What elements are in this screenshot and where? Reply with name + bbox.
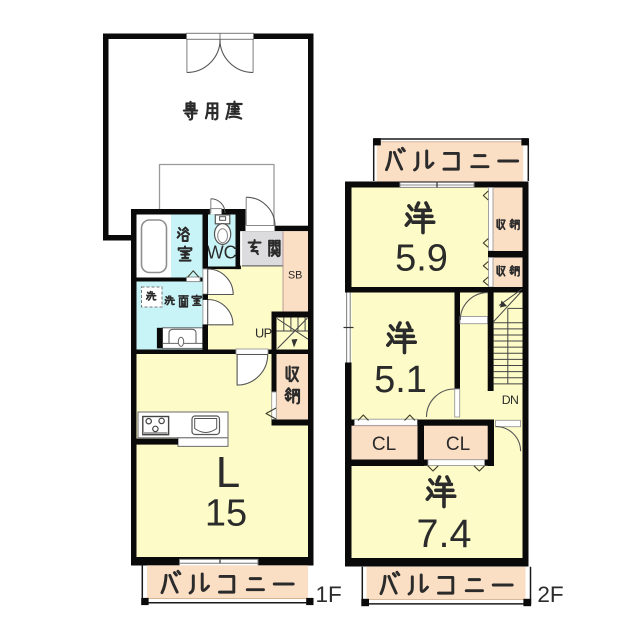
svg-text:1F: 1F	[315, 582, 341, 607]
svg-text:L: L	[216, 448, 240, 497]
svg-text:DN: DN	[502, 393, 519, 407]
svg-text:15: 15	[205, 493, 247, 535]
svg-text:5.1: 5.1	[374, 359, 427, 401]
svg-text:UP: UP	[255, 326, 272, 341]
svg-text:WC: WC	[207, 243, 237, 263]
svg-text:SB: SB	[288, 269, 302, 281]
svg-text:5.9: 5.9	[395, 238, 448, 280]
svg-text:CL: CL	[446, 434, 470, 455]
svg-text:7.4: 7.4	[417, 512, 472, 556]
svg-text:CL: CL	[372, 434, 396, 455]
svg-text:2F: 2F	[537, 582, 563, 607]
